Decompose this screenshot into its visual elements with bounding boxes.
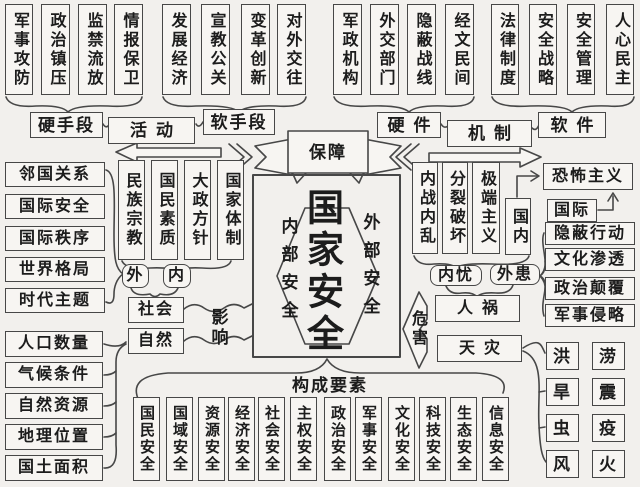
activity-label: 活动 — [108, 117, 195, 144]
soft-means-item: 宣教公关 — [201, 4, 230, 95]
geo-item: 自然资源 — [5, 393, 103, 419]
disaster-item: 虫 — [546, 414, 579, 442]
internal-threat-item: 内战内乱 — [412, 162, 438, 254]
brace-hardware — [334, 97, 474, 112]
domestic-item: 国家体制 — [217, 160, 244, 260]
geo-item: 气候条件 — [5, 362, 103, 388]
external-threat-item: 文化渗透 — [545, 248, 635, 271]
geo-item: 人口数量 — [5, 331, 103, 357]
software-item: 安全战略 — [529, 4, 557, 95]
soft-means-label: 软手段 — [203, 109, 275, 135]
domestic-terror-label: 国内 — [505, 198, 531, 255]
internal-threat-item: 分裂破坏 — [442, 162, 468, 254]
society-label: 社会 — [128, 297, 184, 323]
component-item: 国民安全 — [133, 397, 160, 481]
geo-item: 地理位置 — [5, 424, 103, 450]
component-item: 信息安全 — [482, 397, 509, 481]
national-security-mindmap: 军事攻防 政治镇压 监禁流放 情报保卫 发展经济 宣教公关 变革创新 对外交往 … — [0, 0, 640, 487]
hard-means-item: 情报保卫 — [114, 4, 143, 95]
world-item: 国际秩序 — [5, 226, 105, 251]
terrorism-label: 恐怖主义 — [543, 163, 633, 190]
component-item: 经济安全 — [228, 397, 255, 481]
disaster-item: 洪 — [546, 342, 579, 370]
manmade-disaster-label: 人祸 — [435, 295, 520, 322]
component-item: 国域安全 — [166, 397, 193, 481]
hardware-item: 外交部门 — [370, 4, 399, 95]
international-terror-label: 国际 — [547, 199, 597, 222]
hardware-item: 隐蔽战线 — [407, 4, 436, 95]
world-item: 时代主题 — [5, 288, 105, 313]
brace-software — [492, 97, 634, 112]
disaster-item: 震 — [592, 378, 625, 406]
domestic-item: 大政方针 — [184, 160, 211, 260]
disaster-item: 火 — [592, 450, 625, 478]
internal-security-label: 内部安全 — [276, 212, 300, 334]
internal-threat-item: 极端主义 — [472, 162, 500, 254]
hardware-item: 经文民间 — [445, 4, 474, 95]
external-label: 外 — [122, 264, 149, 288]
component-item: 主权安全 — [290, 397, 317, 481]
hard-means-item: 军事攻防 — [5, 4, 33, 95]
world-item: 国际安全 — [5, 194, 105, 219]
component-item: 军事安全 — [355, 397, 382, 481]
disaster-item: 疫 — [592, 414, 625, 442]
software-item: 安全管理 — [567, 4, 595, 95]
world-item: 邻国关系 — [5, 162, 105, 187]
hard-means-item: 政治镇压 — [41, 4, 70, 95]
world-item: 世界格局 — [5, 257, 105, 282]
disaster-item: 涝 — [592, 342, 625, 370]
component-item: 生态安全 — [450, 397, 477, 481]
disaster-item: 风 — [546, 450, 579, 478]
component-item: 政治安全 — [324, 397, 351, 481]
component-item: 科技安全 — [419, 397, 446, 481]
component-item: 社会安全 — [258, 397, 285, 481]
hardware-item: 军政机构 — [333, 4, 362, 95]
external-threat-item: 政治颠覆 — [545, 277, 635, 300]
external-threat-item: 隐蔽行动 — [545, 222, 635, 245]
external-worry-label: 外患 — [490, 264, 540, 285]
hard-means-item: 监禁流放 — [78, 4, 107, 95]
software-label: 软件 — [538, 112, 606, 138]
harm-label: 危害 — [405, 297, 429, 361]
center-title: 国家安全 — [300, 186, 344, 358]
component-item: 文化安全 — [388, 397, 415, 481]
internal-worry-label: 内忧 — [430, 265, 482, 286]
nature-label: 自然 — [128, 328, 184, 354]
influence-label: 影响 — [206, 302, 230, 354]
component-item: 资源安全 — [198, 397, 225, 481]
brace-hard-means — [6, 97, 142, 112]
hardware-label: 硬件 — [377, 112, 441, 138]
external-security-label: 外部安全 — [358, 208, 382, 330]
hard-means-label: 硬手段 — [30, 112, 103, 138]
soft-means-item: 发展经济 — [162, 4, 191, 95]
natural-disaster-label: 天灾 — [437, 335, 522, 362]
guarantee-banner-label: 保障 — [288, 131, 368, 173]
domestic-item: 民族宗教 — [118, 160, 145, 260]
disaster-item: 旱 — [546, 378, 579, 406]
domestic-item: 国民素质 — [151, 160, 178, 260]
soft-means-item: 变革创新 — [241, 4, 270, 95]
internal-label: 内 — [163, 264, 191, 288]
external-threat-item: 军事侵略 — [545, 304, 635, 327]
mechanism-label: 机制 — [447, 120, 532, 147]
banner-left-wing — [255, 139, 292, 175]
components-label: 构成要素 — [288, 375, 372, 395]
software-item: 法律制度 — [491, 4, 519, 95]
geo-item: 国土面积 — [5, 455, 103, 481]
software-item: 人心民主 — [606, 4, 634, 95]
soft-means-item: 对外交往 — [277, 4, 306, 95]
